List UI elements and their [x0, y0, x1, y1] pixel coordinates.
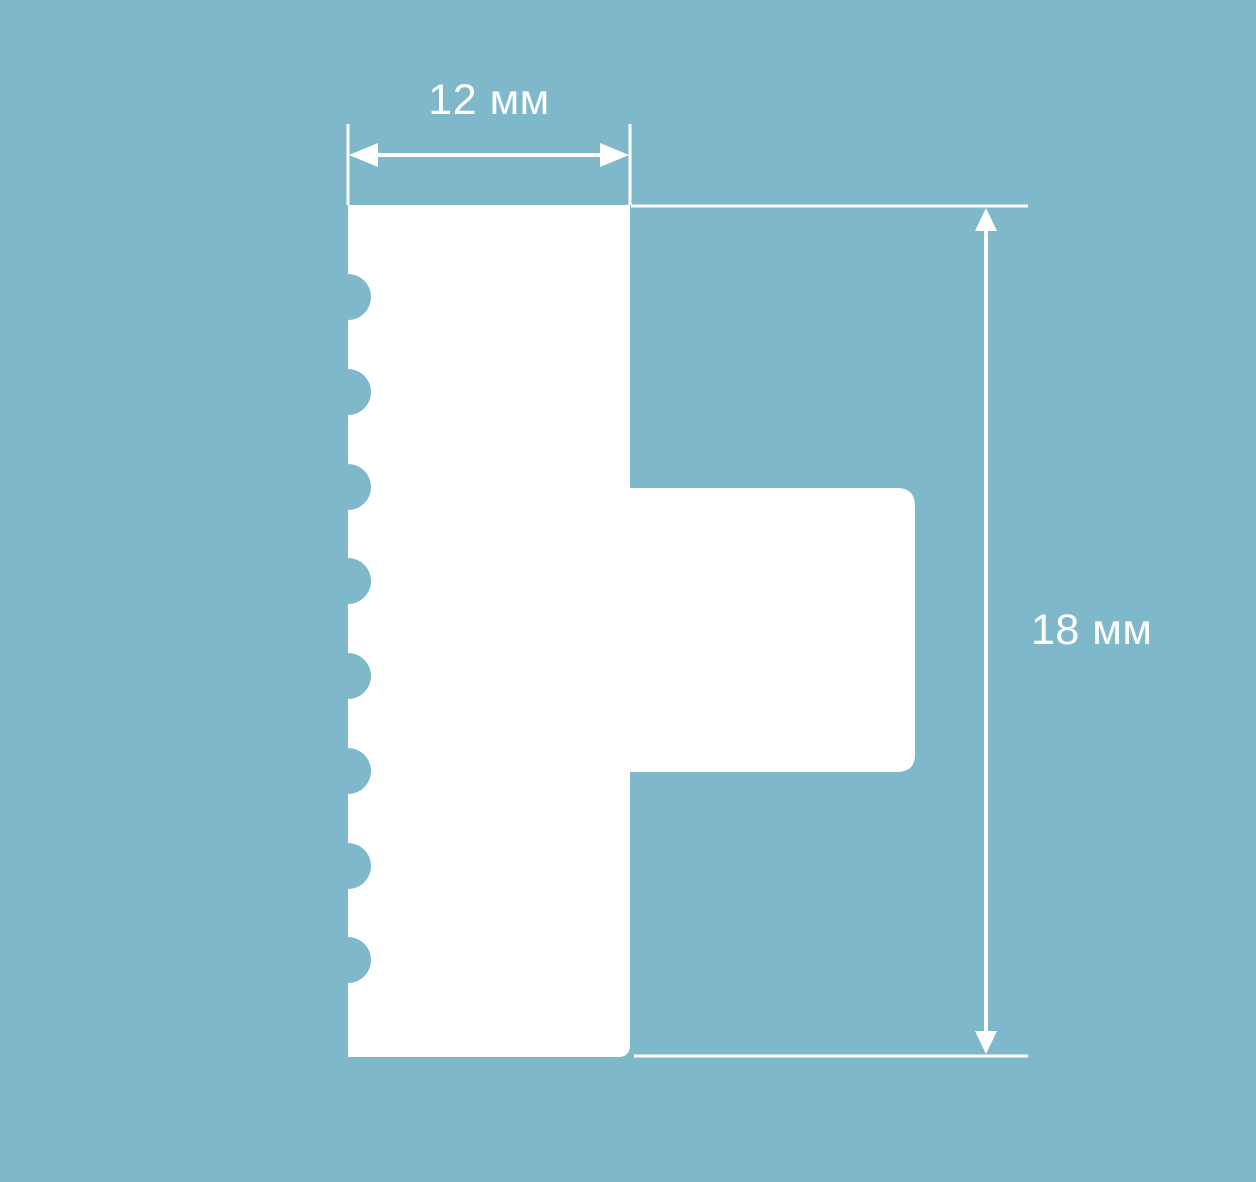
scallop-notch [325, 748, 371, 794]
width-dimension-label: 12 мм [348, 78, 630, 122]
diagram-drawing [0, 0, 1256, 1182]
scallop-notch [325, 937, 371, 983]
up-arrowhead-icon [975, 208, 997, 231]
width-dimension [348, 124, 630, 205]
down-arrowhead-icon [975, 1031, 997, 1054]
scallop-notch [325, 464, 371, 510]
profile-shape [348, 205, 915, 1057]
scallop-notch [325, 843, 371, 889]
scallop-notch [325, 274, 371, 320]
scallop-notch [325, 369, 371, 415]
scallop-notch [325, 653, 371, 699]
right-arrowhead-icon [600, 143, 629, 167]
height-dimension-label: 18 мм [1031, 608, 1152, 652]
left-arrowhead-icon [349, 143, 378, 167]
dimension-diagram: 12 мм 18 мм [0, 0, 1256, 1182]
scallop-notch [325, 558, 371, 604]
